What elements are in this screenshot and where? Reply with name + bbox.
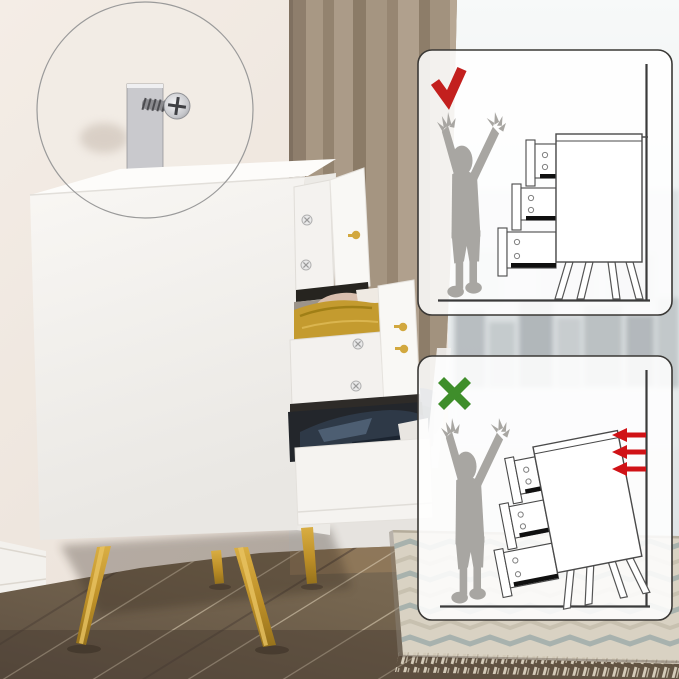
product-image [0, 0, 679, 679]
drawer-front [330, 168, 370, 296]
dresser-side-panel [30, 177, 305, 540]
drawer-box-side [294, 180, 334, 298]
safety-panel-secured [418, 50, 672, 315]
tip-arrows [612, 428, 646, 476]
safety-panel-unsecured [418, 356, 672, 620]
drawer-front [295, 438, 433, 525]
drawer-box-side [290, 332, 384, 406]
drawer-bottom-open [288, 402, 433, 525]
drawer-top-open [294, 168, 370, 302]
